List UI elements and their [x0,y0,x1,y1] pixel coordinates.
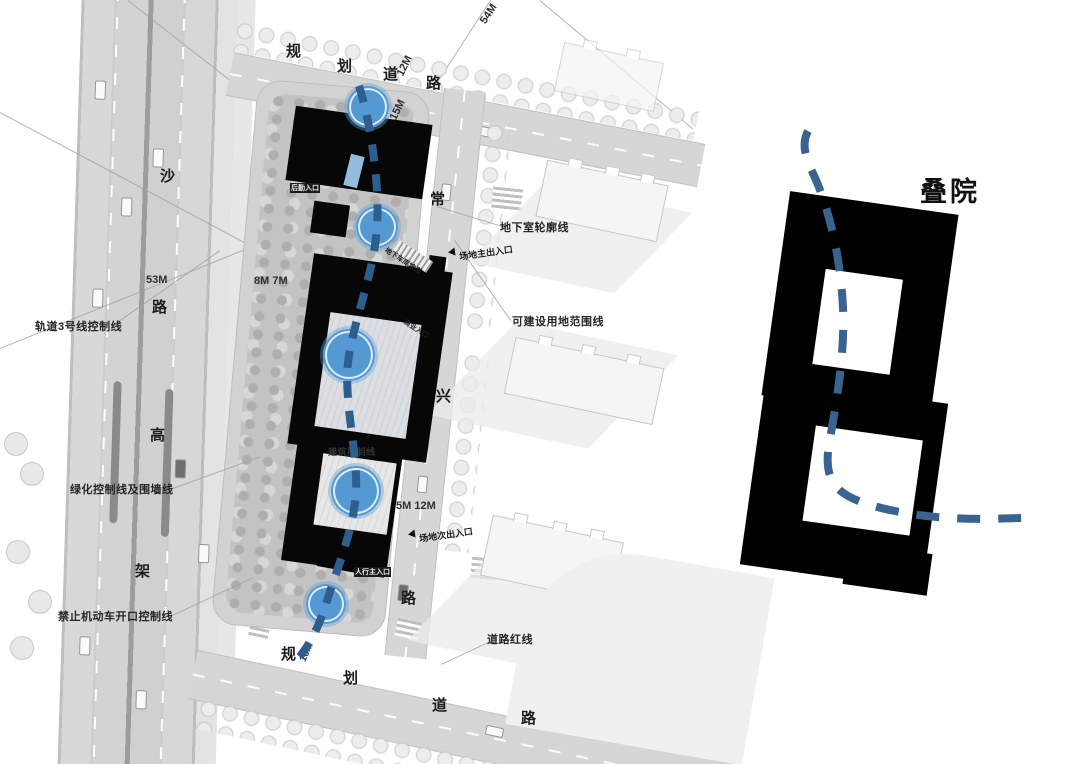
circulation-node [347,86,389,128]
label-no-vehicle-opening: 禁止机动车开口控制线 [58,608,173,624]
footprint-notch [581,344,597,356]
circulation-node [306,584,346,624]
footprint-notch [589,528,605,540]
elevated-road [57,0,240,764]
road-name-char: 高 [150,424,165,445]
median-barrier [161,389,174,537]
tree-icon [20,462,44,486]
road-name-char: 常 [430,188,445,209]
car-icon [79,636,91,655]
entrance-arrow-icon [447,248,455,257]
road-name-char: 规 [281,643,296,664]
road-name-char: 划 [343,667,358,688]
label-rail-control: 轨道3号线控制线 [35,318,122,334]
footprint-notch [582,39,598,51]
label-buildable-range: 可建设用地范围线 [512,313,604,329]
road-name-char: 路 [401,587,416,608]
car-icon [135,690,147,709]
circulation-node [331,466,381,516]
site-plan-canvas: 轨道3号线控制线 绿化控制线及围墙线 禁止机动车开口控制线 地下室轮廓线 可建设… [0,0,1080,764]
footprint-notch [626,48,642,60]
road-name-char: 路 [521,707,536,728]
dimension-5m-12m: 5M 12M [396,500,436,512]
dimension-16m: 16M [298,641,316,663]
car-icon [485,725,505,739]
tree-icon [28,590,52,614]
entrance-arrow-icon [407,530,415,539]
tree-icon [4,432,28,456]
footprint-notch [552,521,568,533]
car-icon [95,80,107,99]
label-basement-outline: 地下室轮廓线 [500,219,569,235]
courtyard-void [803,426,923,536]
label-green-control: 绿化控制线及围墙线 [70,481,174,497]
dimension-53m: 53M [146,274,167,286]
road-name-char: 兴 [436,385,451,406]
car-icon [121,197,133,216]
tree-icon [6,540,30,564]
footprint-notch [626,353,642,365]
car-icon [175,459,187,478]
road-name-char: 架 [135,560,150,581]
label-pedestrian-entrance: 人行主入口 [354,567,391,577]
courtyard-mid [314,312,421,439]
circulation-node [323,329,375,381]
median-barrier [109,381,121,523]
building-block-small [310,201,350,238]
footprint-notch [513,512,529,524]
road-name-char: 划 [337,55,352,76]
label-road-red-line: 道路红线 [487,631,533,647]
car-icon [198,544,210,563]
dimension-8m-7m: 8M 7M [254,275,288,287]
tree-icon [10,636,34,660]
footprint-notch [605,165,621,177]
dimension-54m: 54M [478,2,500,26]
circulation-node [356,206,398,248]
car-icon [417,475,429,493]
road-name-char: 规 [286,40,301,61]
lane-dash-line [159,0,186,764]
road-name-char: 道 [432,694,447,715]
road-name-char: 沙 [160,165,175,186]
footprint-notch [538,335,554,347]
footprint-notch [568,157,584,169]
car-icon [92,288,104,307]
road-name-char: 路 [152,296,167,317]
footprint-notch [640,173,656,185]
courtyard-void [812,269,903,375]
road-name-char: 路 [426,72,441,93]
label-building-control: 建筑控制线 [328,445,376,458]
label-logistics-entrance: 后勤入口 [290,183,320,193]
diagram-title: 叠院 [920,170,980,209]
